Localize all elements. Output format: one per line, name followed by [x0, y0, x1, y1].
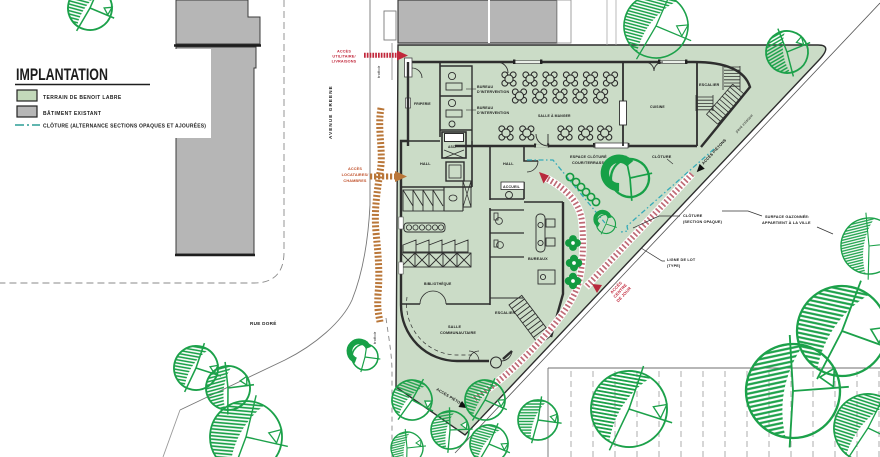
svg-text:COUR/TERRASSE: COUR/TERRASSE [572, 161, 607, 165]
svg-text:BIBLIOTHÈQUE: BIBLIOTHÈQUE [424, 281, 452, 286]
svg-text:CLÔTURE: CLÔTURE [652, 154, 672, 159]
svg-text:(SECTION OPAQUE): (SECTION OPAQUE) [683, 220, 723, 224]
svg-text:ACCÈS: ACCÈS [348, 166, 362, 171]
svg-text:LOCATAIRES/: LOCATAIRES/ [342, 173, 370, 177]
svg-text:LIGNE DE LOT: LIGNE DE LOT [667, 258, 696, 262]
svg-text:BUREAU: BUREAU [477, 106, 494, 110]
svg-text:ACCUEIL: ACCUEIL [503, 185, 521, 189]
svg-text:RUE DORÉ: RUE DORÉ [250, 319, 277, 326]
svg-text:CLÔTURE: CLÔTURE [683, 213, 703, 218]
svg-text:BÂTIMENT EXISTANT: BÂTIMENT EXISTANT [43, 110, 101, 117]
svg-text:UTILITAIRE/: UTILITAIRE/ [332, 55, 356, 59]
svg-text:CLÔTURE (ALTERNANCE SECTIONS O: CLÔTURE (ALTERNANCE SECTIONS OPAQUES ET … [43, 122, 206, 130]
svg-text:TERRAIN DE BENOIT LABRE: TERRAIN DE BENOIT LABRE [43, 95, 122, 101]
svg-text:LIVRAISONS: LIVRAISONS [332, 60, 357, 64]
svg-text:BUREAU: BUREAU [477, 85, 494, 89]
svg-text:trottoir: trottoir [373, 331, 377, 344]
svg-text:CHAMBRES: CHAMBRES [343, 179, 366, 183]
svg-text:APPARTIENT À LA VILLE: APPARTIENT À LA VILLE [762, 220, 811, 225]
svg-text:ESCALIER: ESCALIER [495, 311, 516, 315]
svg-text:BUREAUX: BUREAUX [528, 257, 548, 261]
svg-text:HALL: HALL [503, 162, 514, 166]
svg-text:SALLE À MANGER: SALLE À MANGER [538, 113, 571, 118]
svg-text:trottoir: trottoir [377, 65, 381, 78]
svg-text:(TYPE): (TYPE) [667, 264, 681, 268]
svg-text:AVENUE GREENE: AVENUE GREENE [328, 85, 333, 139]
svg-text:SURFACE GAZONNÉE:: SURFACE GAZONNÉE: [765, 214, 810, 219]
svg-text:SALLE: SALLE [448, 325, 462, 329]
svg-text:D'INTERVENTION: D'INTERVENTION [477, 90, 509, 94]
svg-text:FRIPERIE: FRIPERIE [414, 102, 431, 106]
svg-text:ASC.: ASC. [448, 145, 456, 149]
svg-text:HALL: HALL [420, 162, 431, 166]
svg-text:ACCÈS: ACCÈS [337, 49, 351, 54]
svg-text:COMMUNAUTAIRE: COMMUNAUTAIRE [440, 331, 476, 335]
svg-text:ESCALIER: ESCALIER [699, 83, 720, 87]
svg-text:ESPACE CLÔTURÉ: ESPACE CLÔTURÉ [570, 154, 607, 159]
svg-text:CUISINE: CUISINE [650, 105, 665, 109]
svg-text:IMPLANTATION: IMPLANTATION [16, 66, 108, 84]
svg-text:D'INTERVENTION: D'INTERVENTION [477, 111, 509, 115]
